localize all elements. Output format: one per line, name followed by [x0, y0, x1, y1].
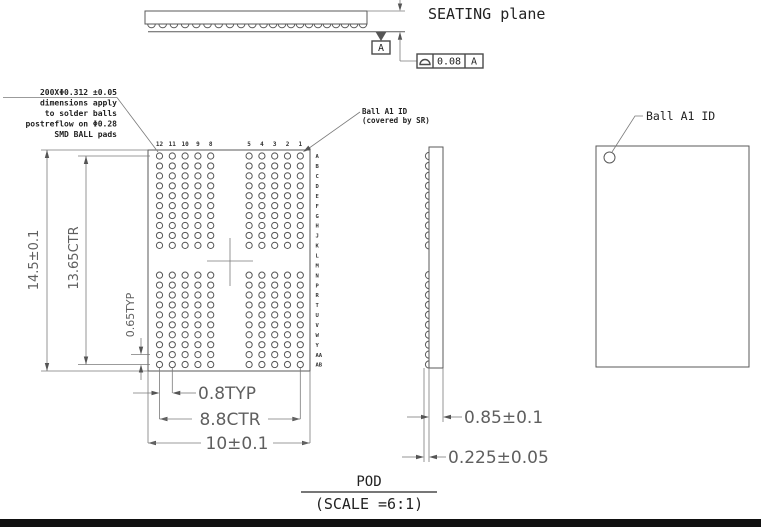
solder-ball — [156, 302, 162, 308]
profile-ball — [425, 212, 429, 219]
solder-ball — [156, 193, 162, 199]
ball-a1-note-line-1: Ball A1 ID — [362, 107, 408, 116]
solder-ball — [259, 203, 265, 209]
solder-ball — [259, 332, 265, 338]
solder-ball — [208, 272, 214, 278]
solder-ball — [246, 163, 252, 169]
solder-ball — [284, 173, 290, 179]
body-length-arrow-top — [45, 150, 49, 158]
row-label: AB — [316, 363, 323, 369]
row-label: J — [316, 234, 319, 240]
solder-ball — [169, 361, 175, 367]
view-scale: (SCALE =6:1) — [315, 495, 423, 513]
profile-ball — [425, 321, 429, 328]
solder-ball — [169, 302, 175, 308]
side-elevation-ball — [159, 24, 167, 28]
solder-ball — [182, 232, 188, 238]
profile-ball — [425, 341, 429, 348]
solder-ball — [182, 183, 188, 189]
solder-ball — [208, 292, 214, 298]
dim-body-width: 10±0.1 — [206, 434, 269, 454]
ball-height-arrow-left — [429, 455, 437, 459]
dim-pitch-h: 0.8TYP — [198, 384, 256, 404]
solder-ball — [297, 153, 303, 159]
solder-ball — [284, 322, 290, 328]
solder-ball — [169, 232, 175, 238]
solder-ball — [169, 292, 175, 298]
drawing: SEATING plane A 0.08 A 1211109854321 ABC… — [0, 0, 761, 528]
solder-ball — [195, 282, 201, 288]
solder-ball — [208, 232, 214, 238]
ball-a1-note-bottom-view: Ball A1 ID (covered by SR) — [303, 107, 430, 152]
fcf-tolerance: 0.08 — [437, 57, 461, 68]
solder-ball — [272, 203, 278, 209]
solder-ball — [297, 173, 303, 179]
solder-ball — [246, 302, 252, 308]
solder-ball — [156, 242, 162, 248]
side-elevation-ball — [332, 24, 340, 28]
row-label: W — [316, 333, 320, 339]
solder-ball — [272, 352, 278, 358]
ball-span-v-arrow-bottom — [84, 357, 88, 365]
solder-ball — [169, 272, 175, 278]
solder-ball — [284, 193, 290, 199]
solder-ball — [272, 163, 278, 169]
column-label: 9 — [196, 141, 200, 148]
side-elevation-ball — [341, 24, 349, 28]
solder-ball — [182, 212, 188, 218]
profile-ball — [425, 222, 429, 229]
solder-ball — [284, 203, 290, 209]
solder-ball — [246, 282, 252, 288]
solder-ball — [246, 361, 252, 367]
solder-ball — [259, 342, 265, 348]
solder-ball — [246, 193, 252, 199]
profile-ball — [425, 281, 429, 288]
title-block: POD (SCALE =6:1) — [301, 474, 437, 513]
column-label: 3 — [273, 141, 277, 148]
ball-span-v-arrow-top — [84, 156, 88, 164]
solder-ball — [208, 332, 214, 338]
solder-ball — [156, 173, 162, 179]
body-length-arrow-bottom — [45, 363, 49, 371]
solder-ball — [156, 292, 162, 298]
solder-ball — [297, 222, 303, 228]
bottom-dimensions: 0.8TYP 8.8CTR 10±0.1 — [133, 368, 310, 454]
solder-ball — [195, 302, 201, 308]
solder-ball — [272, 332, 278, 338]
solder-ball — [284, 282, 290, 288]
ball-spec-line-3: to solder balls — [45, 109, 117, 118]
ball-spec-line-2: dimensions apply — [40, 98, 117, 108]
side-profile-view: 0.85±0.1 0.225±0.05 — [402, 147, 549, 468]
side-elevation-ball — [204, 24, 212, 28]
solder-ball — [259, 352, 265, 358]
solder-ball — [259, 222, 265, 228]
column-label: 12 — [156, 141, 164, 148]
row-label: A — [316, 154, 320, 160]
solder-ball — [246, 292, 252, 298]
solder-ball — [272, 232, 278, 238]
solder-ball — [169, 153, 175, 159]
package-outline-top-view — [596, 146, 749, 367]
solder-ball — [272, 342, 278, 348]
solder-ball — [182, 173, 188, 179]
ball-spec-line-1: 200XΦ0.312 ±0.05 — [40, 88, 117, 97]
solder-ball — [272, 183, 278, 189]
solder-ball — [195, 153, 201, 159]
pod-drawing-page: SEATING plane A 0.08 A 1211109854321 ABC… — [0, 0, 761, 528]
ball-a1-note-line-2: (covered by SR) — [362, 116, 430, 125]
solder-ball — [156, 272, 162, 278]
solder-ball — [259, 193, 265, 199]
ball-a1-id-marker — [604, 152, 615, 163]
row-label: L — [316, 254, 320, 260]
profile-ball — [425, 351, 429, 358]
profile-ball — [425, 242, 429, 249]
solder-ball — [272, 173, 278, 179]
solder-ball — [208, 222, 214, 228]
row-label: H — [316, 224, 319, 230]
pitch-v-arrow-down — [139, 347, 143, 355]
dim-ball-height: 0.225±0.05 — [448, 448, 549, 468]
ball-spec-note: 200XΦ0.312 ±0.05 dimensions apply to sol… — [3, 88, 158, 152]
solder-ball — [156, 282, 162, 288]
ball-a1-leader — [305, 112, 360, 151]
solder-ball — [246, 232, 252, 238]
side-elevation-ball — [287, 24, 295, 28]
solder-ball — [156, 153, 162, 159]
solder-ball — [195, 173, 201, 179]
solder-ball — [169, 222, 175, 228]
pitch-h-arrow-left — [172, 391, 180, 395]
column-label: 2 — [286, 141, 290, 148]
solder-ball — [272, 193, 278, 199]
solder-ball — [208, 163, 214, 169]
solder-ball — [297, 203, 303, 209]
side-elevation-ball — [278, 24, 286, 28]
row-label: T — [316, 303, 320, 309]
solder-ball — [259, 361, 265, 367]
solder-ball — [297, 352, 303, 358]
solder-ball — [195, 361, 201, 367]
solder-ball — [182, 203, 188, 209]
solder-ball — [208, 352, 214, 358]
dim-body-thickness: 0.85±0.1 — [464, 408, 543, 428]
column-label: 1 — [298, 141, 302, 148]
solder-ball — [297, 212, 303, 218]
solder-ball — [272, 153, 278, 159]
height-arrow-up — [398, 32, 402, 40]
solder-ball — [156, 212, 162, 218]
solder-ball — [182, 272, 188, 278]
dim-ball-span-h: 8.8CTR — [199, 410, 260, 430]
dim-body-length: 14.5±0.1 — [27, 230, 42, 291]
solder-ball — [156, 183, 162, 189]
solder-ball — [208, 282, 214, 288]
profile-ball — [425, 182, 429, 189]
row-label: R — [316, 293, 320, 299]
solder-ball — [272, 322, 278, 328]
solder-ball — [169, 342, 175, 348]
solder-ball — [259, 322, 265, 328]
solder-ball — [297, 242, 303, 248]
ball-spec-leader — [117, 98, 158, 153]
side-elevation-ball — [237, 24, 245, 28]
solder-ball — [195, 212, 201, 218]
column-label: 11 — [169, 141, 177, 148]
profile-ball — [425, 291, 429, 298]
solder-ball — [169, 312, 175, 318]
solder-ball — [182, 282, 188, 288]
solder-ball — [156, 312, 162, 318]
solder-ball — [284, 332, 290, 338]
solder-ball — [284, 163, 290, 169]
solder-ball — [259, 163, 265, 169]
column-label: 4 — [260, 141, 264, 148]
ball-spec-line-4: postreflow on Φ0.28 — [25, 120, 117, 129]
solder-ball — [182, 361, 188, 367]
solder-ball — [195, 322, 201, 328]
solder-ball — [246, 203, 252, 209]
profile-ball — [425, 272, 429, 279]
solder-ball — [156, 342, 162, 348]
solder-ball — [246, 153, 252, 159]
solder-ball — [182, 292, 188, 298]
solder-ball — [195, 272, 201, 278]
solder-ball — [272, 361, 278, 367]
solder-ball — [195, 203, 201, 209]
solder-ball — [297, 332, 303, 338]
row-label: E — [316, 194, 319, 200]
solder-ball — [169, 173, 175, 179]
solder-ball — [272, 292, 278, 298]
solder-ball — [208, 312, 214, 318]
solder-ball — [259, 272, 265, 278]
solder-ball — [259, 173, 265, 179]
solder-ball — [182, 242, 188, 248]
side-elevation-ball — [226, 24, 234, 28]
fcf-datum-ref: A — [471, 57, 477, 68]
solder-ball — [182, 163, 188, 169]
side-elevation-ball — [181, 24, 189, 28]
solder-ball — [182, 153, 188, 159]
solder-ball — [297, 232, 303, 238]
solder-ball — [195, 163, 201, 169]
solder-ball — [182, 322, 188, 328]
side-elevation-ball — [269, 24, 277, 28]
solder-ball — [272, 312, 278, 318]
ball-height-arrow-right — [416, 455, 424, 459]
solder-ball — [246, 212, 252, 218]
solder-ball — [297, 193, 303, 199]
solder-ball — [182, 312, 188, 318]
feature-control-frame: 0.08 A — [417, 54, 483, 68]
thickness-arrow-right — [421, 415, 429, 419]
row-label: P — [316, 283, 320, 289]
solder-ball — [246, 312, 252, 318]
ball-a1-top-label: Ball A1 ID — [646, 109, 715, 123]
side-elevation-view: SEATING plane A 0.08 A — [145, 0, 545, 68]
solder-ball — [182, 302, 188, 308]
solder-ball — [208, 153, 214, 159]
side-elevation-ball — [260, 24, 268, 28]
solder-ball — [272, 302, 278, 308]
solder-ball — [284, 342, 290, 348]
solder-ball — [272, 222, 278, 228]
seating-plane-label: SEATING plane — [428, 5, 545, 23]
profile-ball — [425, 301, 429, 308]
profile-ball — [425, 311, 429, 318]
solder-ball — [246, 352, 252, 358]
solder-ball — [284, 292, 290, 298]
solder-ball — [208, 183, 214, 189]
solder-ball — [297, 183, 303, 189]
solder-ball — [156, 352, 162, 358]
bottom-black-bar — [0, 519, 761, 527]
solder-ball — [297, 342, 303, 348]
pitch-h-arrow-right — [152, 391, 160, 395]
solder-ball — [208, 342, 214, 348]
solder-ball — [182, 332, 188, 338]
row-label: C — [316, 174, 319, 180]
height-arrow-down — [398, 4, 402, 12]
side-elevation-ball — [314, 24, 322, 28]
solder-ball — [195, 352, 201, 358]
ball-a1-top-leader — [612, 116, 643, 152]
solder-ball — [156, 322, 162, 328]
row-label: V — [316, 323, 320, 329]
grid-column-labels: 1211109854321 — [156, 141, 303, 148]
row-label: Y — [316, 343, 320, 349]
solder-ball — [208, 361, 214, 367]
solder-ball — [284, 352, 290, 358]
solder-ball — [156, 203, 162, 209]
profile-ball — [425, 192, 429, 199]
solder-ball — [156, 332, 162, 338]
solder-ball — [259, 292, 265, 298]
profile-ball — [425, 172, 429, 179]
solder-ball — [297, 302, 303, 308]
profile-ball — [425, 202, 429, 209]
solder-ball — [259, 153, 265, 159]
profile-balls — [425, 152, 429, 368]
solder-ball — [297, 282, 303, 288]
top-package-view: Ball A1 ID — [596, 109, 749, 367]
solder-ball — [195, 332, 201, 338]
solder-ball — [284, 183, 290, 189]
solder-ball — [284, 272, 290, 278]
row-label: AA — [316, 353, 323, 359]
solder-ball — [259, 232, 265, 238]
solder-ball — [169, 193, 175, 199]
solder-ball — [195, 232, 201, 238]
solder-ball — [284, 302, 290, 308]
solder-ball — [182, 352, 188, 358]
solder-ball — [246, 322, 252, 328]
solder-ball — [169, 183, 175, 189]
profile-ball — [425, 361, 429, 368]
row-label: N — [316, 273, 319, 279]
solder-ball — [284, 312, 290, 318]
row-label: G — [316, 214, 320, 220]
left-dimensions: 14.5±0.1 13.65CTR 0.65TYP — [27, 150, 150, 380]
side-elevation-ball — [359, 24, 367, 28]
solder-ball — [284, 242, 290, 248]
flatness-symbol-icon — [420, 60, 430, 65]
solder-ball — [297, 163, 303, 169]
solder-ball — [284, 361, 290, 367]
solder-ball — [195, 193, 201, 199]
solder-ball — [246, 342, 252, 348]
dim-pitch-v: 0.65TYP — [124, 292, 137, 337]
solder-ball — [169, 282, 175, 288]
solder-ball — [259, 312, 265, 318]
solder-ball — [259, 302, 265, 308]
dim-ball-span-v: 13.65CTR — [67, 226, 82, 289]
side-elevation-ball — [350, 24, 358, 28]
profile-ball — [425, 152, 429, 159]
thickness-arrow-left — [443, 415, 451, 419]
solder-ball — [272, 272, 278, 278]
solder-ball — [169, 163, 175, 169]
column-label: 5 — [247, 141, 251, 148]
solder-ball — [182, 193, 188, 199]
pitch-v-arrow-up — [139, 365, 143, 373]
side-elevation-ball — [249, 24, 257, 28]
solder-ball — [208, 193, 214, 199]
solder-ball — [195, 183, 201, 189]
solder-ball — [259, 242, 265, 248]
datum-letter: A — [378, 43, 384, 54]
solder-ball — [156, 222, 162, 228]
column-label: 10 — [181, 141, 189, 148]
solder-ball — [169, 332, 175, 338]
solder-ball — [208, 173, 214, 179]
solder-ball — [246, 183, 252, 189]
solder-ball — [246, 332, 252, 338]
solder-ball — [284, 212, 290, 218]
package-body-outline — [145, 11, 367, 24]
solder-ball — [182, 222, 188, 228]
row-label: K — [316, 244, 320, 250]
solder-ball — [297, 322, 303, 328]
solder-ball — [195, 342, 201, 348]
profile-ball — [425, 331, 429, 338]
profile-ball — [425, 162, 429, 169]
solder-ball — [259, 183, 265, 189]
grid-row-labels: ABCDEFGHJKLMNPRTUVWYAAAB — [316, 154, 323, 369]
solder-ball — [156, 163, 162, 169]
solder-ball — [246, 222, 252, 228]
row-label: U — [316, 313, 320, 319]
side-elevation-ball — [296, 24, 304, 28]
solder-ball — [169, 203, 175, 209]
solder-ball — [169, 322, 175, 328]
solder-ball — [195, 242, 201, 248]
solder-ball — [156, 361, 162, 367]
row-label: M — [316, 263, 320, 269]
side-elevation-ball — [323, 24, 331, 28]
solder-ball — [272, 242, 278, 248]
solder-ball — [156, 232, 162, 238]
side-elevation-ball — [193, 24, 201, 28]
solder-ball — [297, 312, 303, 318]
solder-ball — [284, 153, 290, 159]
solder-ball — [246, 242, 252, 248]
solder-ball — [246, 173, 252, 179]
solder-ball — [169, 212, 175, 218]
